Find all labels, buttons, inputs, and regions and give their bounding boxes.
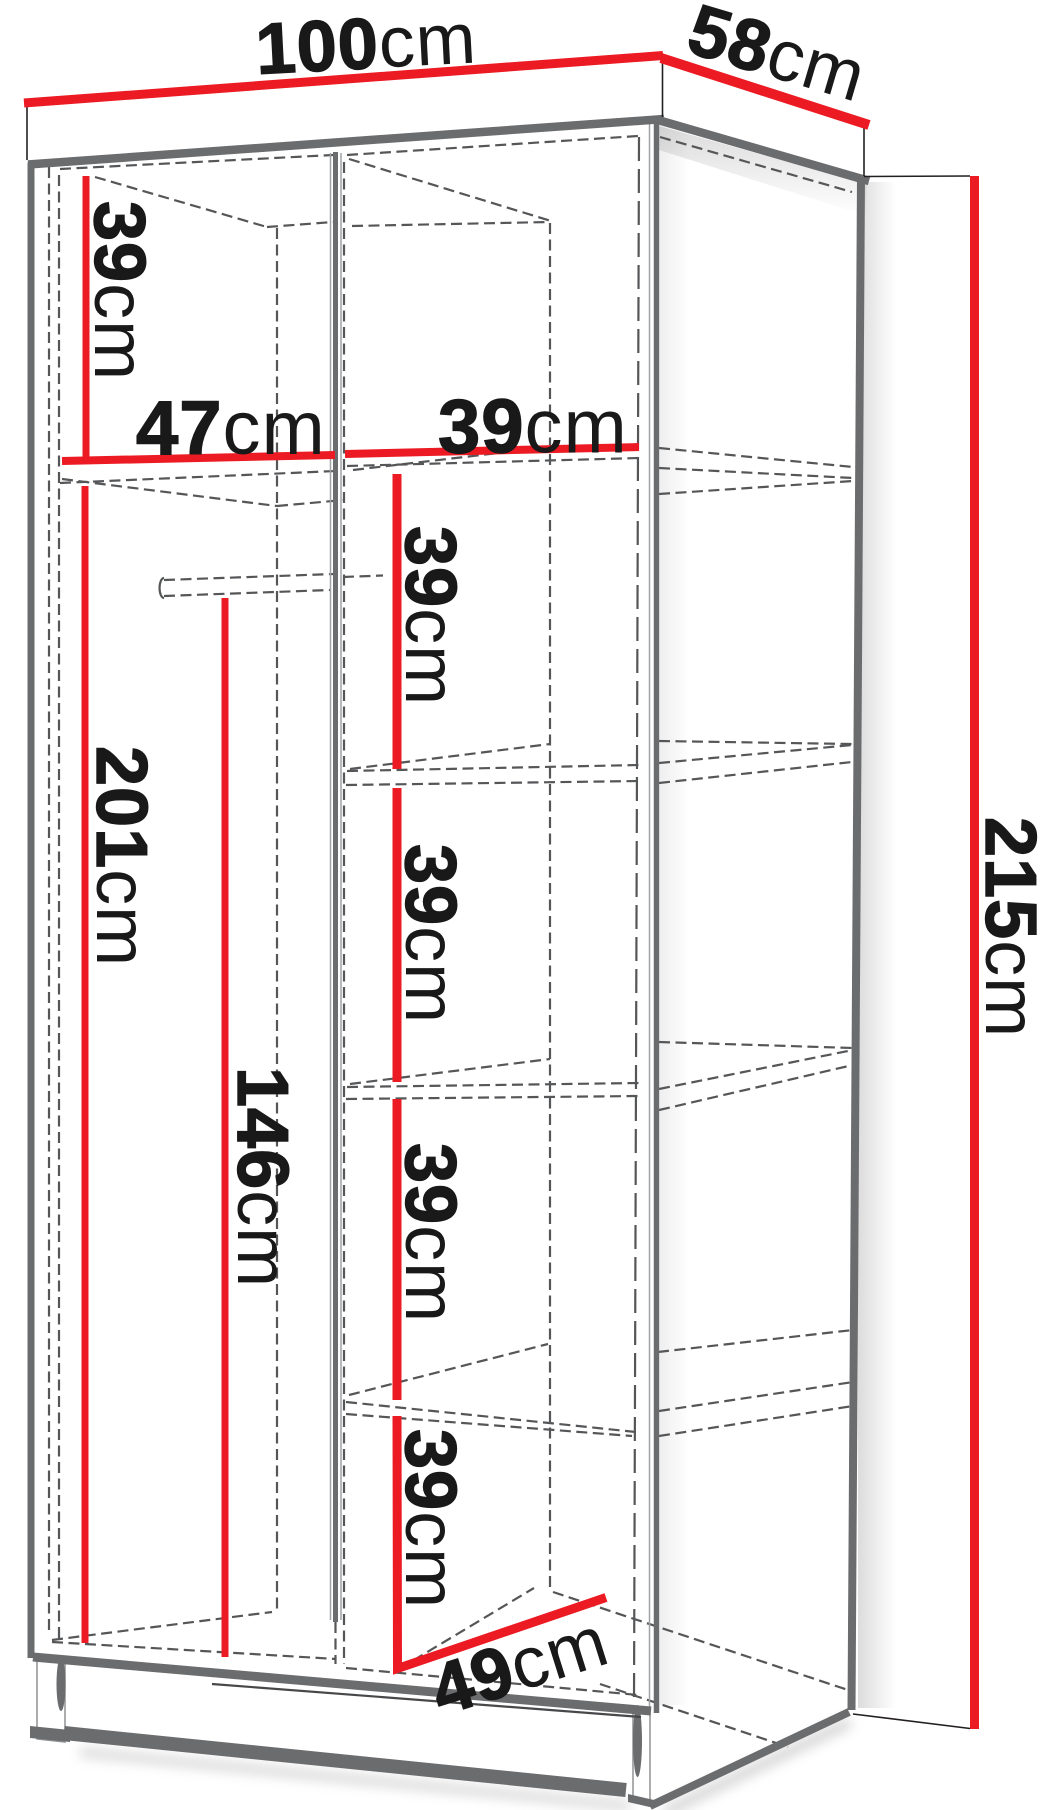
svg-text:201cm: 201cm <box>81 746 161 967</box>
svg-text:39cm: 39cm <box>438 385 628 470</box>
svg-text:100cm: 100cm <box>254 0 479 90</box>
svg-text:39cm: 39cm <box>79 201 159 381</box>
svg-text:146cm: 146cm <box>222 1067 302 1288</box>
svg-text:39cm: 39cm <box>390 1429 470 1609</box>
svg-text:39cm: 39cm <box>390 844 470 1024</box>
svg-text:215cm: 215cm <box>970 817 1050 1038</box>
svg-text:39cm: 39cm <box>390 1143 470 1323</box>
svg-text:39cm: 39cm <box>390 526 470 706</box>
svg-text:47cm: 47cm <box>136 386 326 471</box>
